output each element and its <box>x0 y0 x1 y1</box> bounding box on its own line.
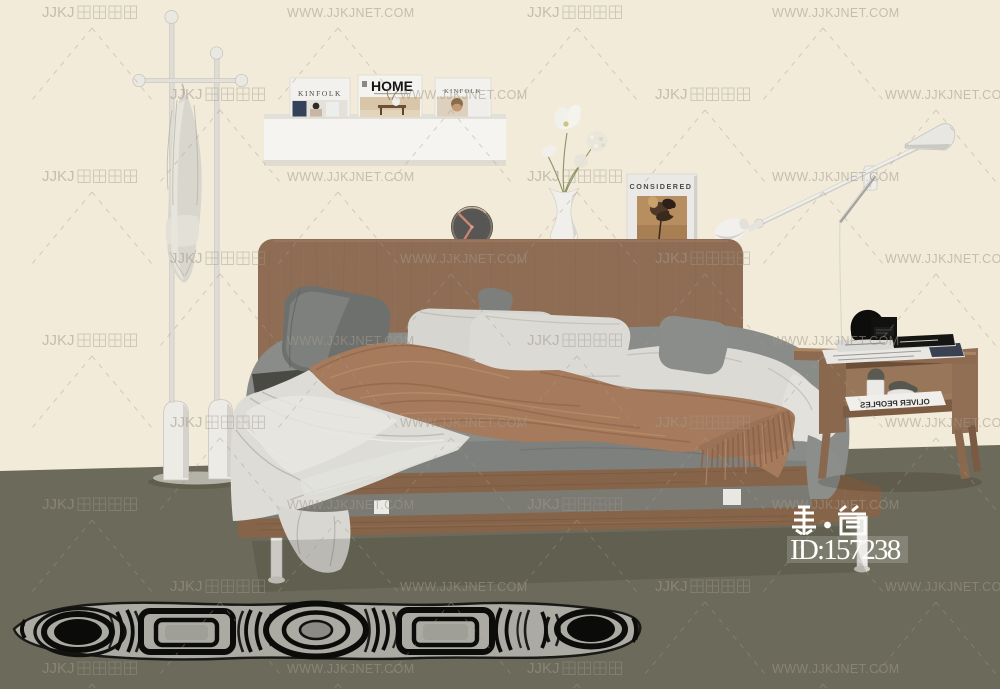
svg-text:WWW.JJKJNET.COM: WWW.JJKJNET.COM <box>885 88 1000 102</box>
svg-text:WWW.JJKJNET.COM: WWW.JJKJNET.COM <box>772 662 900 676</box>
svg-text:JJKJ: JJKJ <box>527 496 560 513</box>
svg-text:JJKJ: JJKJ <box>170 578 203 595</box>
svg-text:JJKJ: JJKJ <box>170 86 203 103</box>
svg-text:JJKJ: JJKJ <box>527 332 560 349</box>
svg-text:JJKJ: JJKJ <box>655 250 688 267</box>
svg-text:WWW.JJKJNET.COM: WWW.JJKJNET.COM <box>400 580 528 594</box>
svg-text:JJKJ: JJKJ <box>527 4 560 21</box>
svg-text:JJKJ: JJKJ <box>42 660 75 677</box>
svg-text:WWW.JJKJNET.COM: WWW.JJKJNET.COM <box>287 662 415 676</box>
svg-text:WWW.JJKJNET.COM: WWW.JJKJNET.COM <box>400 416 528 430</box>
svg-text:WWW.JJKJNET.COM: WWW.JJKJNET.COM <box>287 170 415 184</box>
svg-text:WWW.JJKJNET.COM: WWW.JJKJNET.COM <box>885 252 1000 266</box>
svg-text:WWW.JJKJNET.COM: WWW.JJKJNET.COM <box>885 416 1000 430</box>
svg-text:WWW.JJKJNET.COM: WWW.JJKJNET.COM <box>400 88 528 102</box>
svg-text:WWW.JJKJNET.COM: WWW.JJKJNET.COM <box>885 580 1000 594</box>
svg-text:WWW.JJKJNET.COM: WWW.JJKJNET.COM <box>287 6 415 20</box>
svg-text:WWW.JJKJNET.COM: WWW.JJKJNET.COM <box>287 498 415 512</box>
svg-text:WWW.JJKJNET.COM: WWW.JJKJNET.COM <box>287 334 415 348</box>
svg-text:JJKJ: JJKJ <box>42 496 75 513</box>
svg-text:JJKJ: JJKJ <box>42 332 75 349</box>
svg-text:JJKJ: JJKJ <box>42 168 75 185</box>
svg-text:JJKJ: JJKJ <box>655 414 688 431</box>
svg-text:JJKJ: JJKJ <box>655 578 688 595</box>
svg-text:JJKJ: JJKJ <box>527 660 560 677</box>
svg-text:WWW.JJKJNET.COM: WWW.JJKJNET.COM <box>772 170 900 184</box>
svg-text:JJKJ: JJKJ <box>170 414 203 431</box>
svg-text:JJKJ: JJKJ <box>527 168 560 185</box>
svg-text:WWW.JJKJNET.COM: WWW.JJKJNET.COM <box>772 6 900 20</box>
svg-text:CONSIDERED: CONSIDERED <box>630 182 693 191</box>
svg-text:WWW.JJKJNET.COM: WWW.JJKJNET.COM <box>772 334 900 348</box>
svg-text:WWW.JJKJNET.COM: WWW.JJKJNET.COM <box>400 252 528 266</box>
svg-text:ID:157238: ID:157238 <box>790 534 901 566</box>
svg-text:JJKJ: JJKJ <box>170 250 203 267</box>
svg-text:JJKJ: JJKJ <box>42 4 75 21</box>
svg-text:JJKJ: JJKJ <box>655 86 688 103</box>
svg-text:WWW.JJKJNET.COM: WWW.JJKJNET.COM <box>772 498 900 512</box>
svg-text:KINFOLK: KINFOLK <box>298 89 342 98</box>
